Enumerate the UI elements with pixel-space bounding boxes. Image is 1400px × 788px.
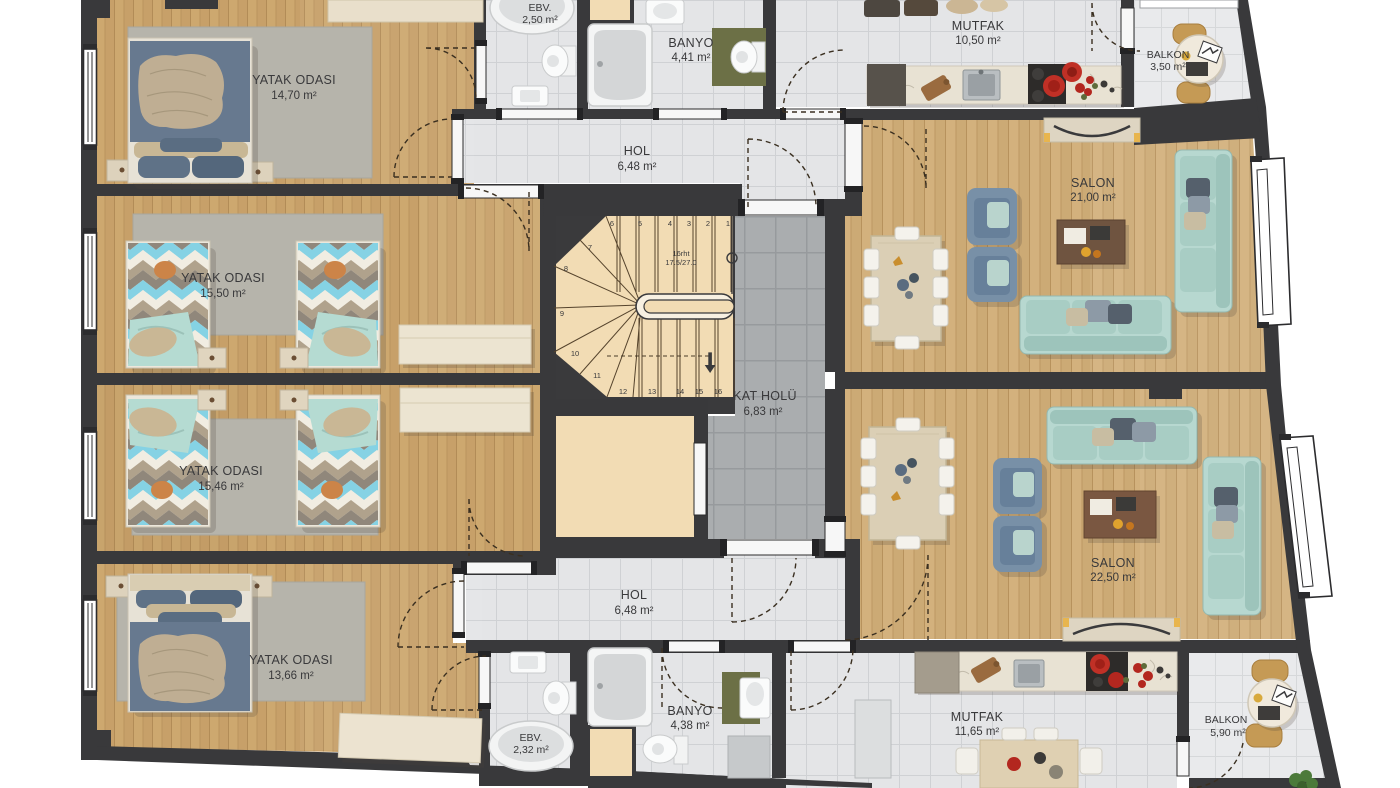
svg-text:BANYO: BANYO <box>667 704 712 718</box>
svg-text:2: 2 <box>706 219 710 228</box>
svg-text:HOL: HOL <box>624 144 651 158</box>
svg-text:1: 1 <box>726 219 730 228</box>
svg-text:11,65 m²: 11,65 m² <box>955 726 1000 738</box>
svg-text:YATAK ODASI: YATAK ODASI <box>249 653 333 667</box>
svg-text:2,32 m²: 2,32 m² <box>513 744 549 756</box>
svg-text:6: 6 <box>610 219 614 228</box>
svg-text:15,46 m²: 15,46 m² <box>198 481 244 493</box>
svg-text:MUTFAK: MUTFAK <box>952 19 1005 33</box>
svg-text:7: 7 <box>588 243 592 252</box>
svg-text:KAT HOLÜ: KAT HOLÜ <box>733 389 797 403</box>
svg-text:BALKON: BALKON <box>1147 49 1190 61</box>
svg-text:BALKON: BALKON <box>1205 714 1248 726</box>
svg-text:BANYO: BANYO <box>668 36 713 50</box>
svg-text:11: 11 <box>593 371 601 380</box>
svg-text:10,50 m²: 10,50 m² <box>955 35 1001 47</box>
svg-text:YATAK ODASI: YATAK ODASI <box>252 73 336 87</box>
svg-text:SALON: SALON <box>1091 556 1135 570</box>
svg-text:5,90 m²: 5,90 m² <box>1210 727 1246 739</box>
svg-text:22,50 m²: 22,50 m² <box>1090 572 1136 584</box>
svg-text:15: 15 <box>695 387 703 396</box>
svg-text:SALON: SALON <box>1071 176 1115 190</box>
svg-text:6,48 m²: 6,48 m² <box>615 605 654 617</box>
svg-text:9: 9 <box>560 309 564 318</box>
svg-text:13,66 m²: 13,66 m² <box>268 670 314 682</box>
svg-text:14: 14 <box>676 387 684 396</box>
svg-text:YATAK ODASI: YATAK ODASI <box>179 464 263 478</box>
svg-text:2,50 m²: 2,50 m² <box>522 14 558 26</box>
svg-text:8: 8 <box>564 264 568 273</box>
svg-text:EBV.: EBV. <box>529 2 552 14</box>
svg-text:3,50 m²: 3,50 m² <box>1150 61 1186 73</box>
svg-text:14,70 m²: 14,70 m² <box>271 90 317 102</box>
svg-text:6,83 m²: 6,83 m² <box>744 406 783 418</box>
svg-text:13: 13 <box>648 387 656 396</box>
svg-text:4,38 m²: 4,38 m² <box>671 720 710 732</box>
svg-text:16: 16 <box>714 387 722 396</box>
svg-text:12: 12 <box>619 387 627 396</box>
svg-text:10: 10 <box>571 349 579 358</box>
svg-text:4,41 m²: 4,41 m² <box>672 52 711 64</box>
svg-text:15,50 m²: 15,50 m² <box>200 288 246 300</box>
svg-text:17.5/27.0: 17.5/27.0 <box>665 258 696 267</box>
svg-text:21,00 m²: 21,00 m² <box>1070 192 1116 204</box>
svg-text:HOL: HOL <box>621 588 648 602</box>
svg-text:16rht: 16rht <box>672 249 690 258</box>
svg-text:3: 3 <box>687 219 691 228</box>
svg-text:YATAK ODASI: YATAK ODASI <box>181 271 265 285</box>
svg-text:MUTFAK: MUTFAK <box>951 710 1004 724</box>
svg-text:6,48 m²: 6,48 m² <box>618 161 657 173</box>
svg-text:EBV.: EBV. <box>520 732 543 744</box>
svg-text:5: 5 <box>638 219 642 228</box>
svg-text:4: 4 <box>668 219 672 228</box>
